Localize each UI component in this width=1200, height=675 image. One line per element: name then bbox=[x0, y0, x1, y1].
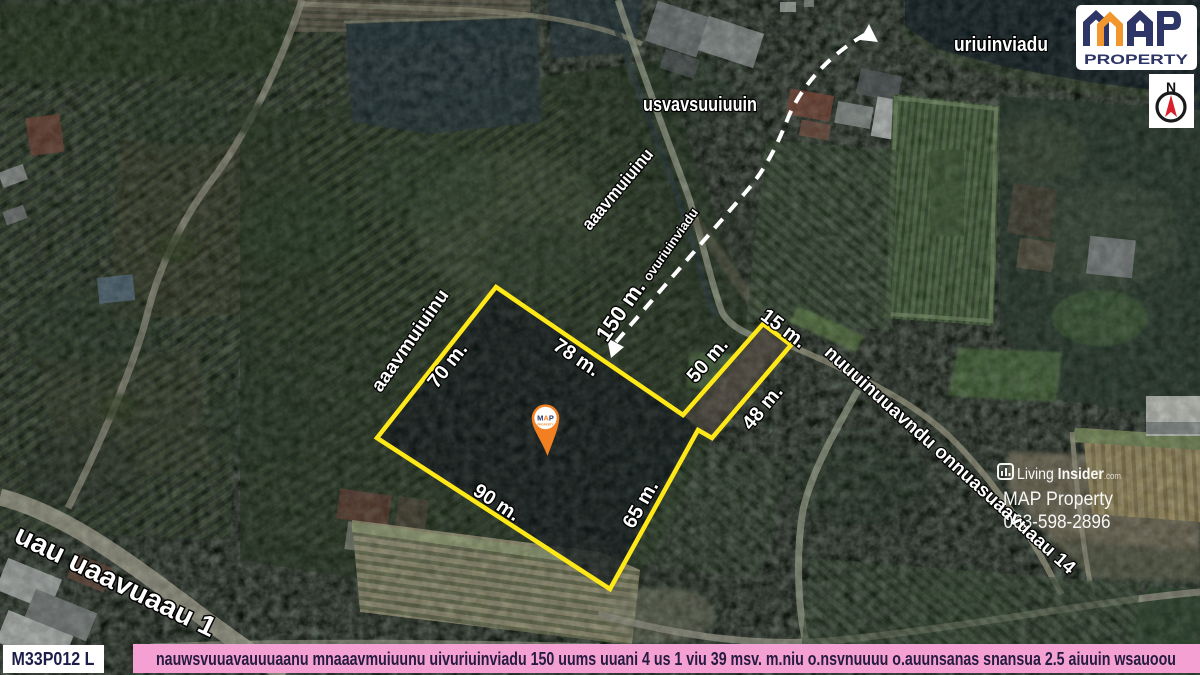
svg-text:M33P012 L: M33P012 L bbox=[12, 649, 95, 669]
svg-text:usvavsuuiuuin: usvavsuuiuuin bbox=[643, 94, 757, 116]
svg-text:063-598-2896: 063-598-2896 bbox=[1004, 512, 1111, 533]
svg-text:MAP Property: MAP Property bbox=[1003, 489, 1113, 510]
svg-text:PROPERTY: PROPERTY bbox=[537, 423, 554, 427]
svg-text:nauwsvuuavauuuaanu mnaaavmuiu: nauwsvuuavauuuaanu mnaaavmuiuunu uivuriu… bbox=[156, 649, 1176, 669]
svg-text:uriuinviadu: uriuinviadu bbox=[954, 34, 1048, 56]
svg-text:MAP: MAP bbox=[537, 414, 554, 423]
svg-text:PROPERTY: PROPERTY bbox=[1084, 51, 1189, 67]
